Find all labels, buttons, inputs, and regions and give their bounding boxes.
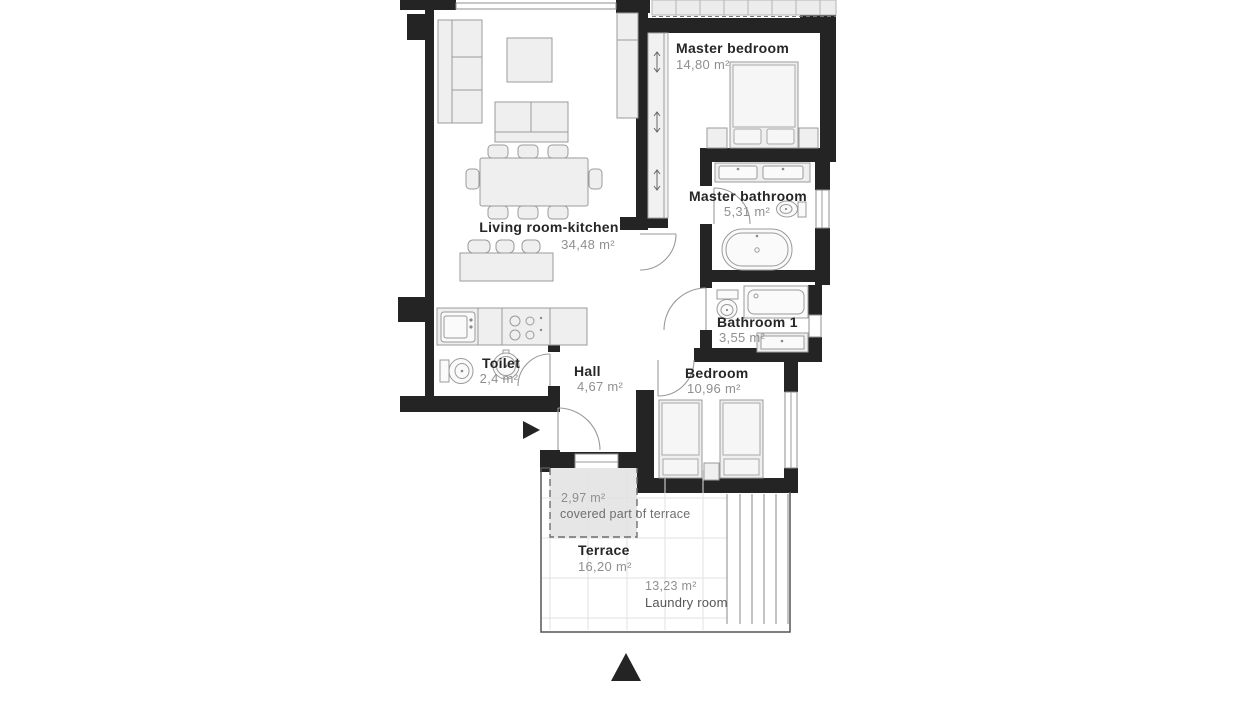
room-area-bedroom: 10,96 m² <box>687 382 741 396</box>
single-bed-icon <box>659 400 702 478</box>
room-label-terrace: Terrace <box>578 543 630 558</box>
laundry-room-area-label: 13,23 m² <box>645 580 697 593</box>
room-area-terrace: 16,20 m² <box>578 560 632 574</box>
covered-terrace-text: covered part of terrace <box>560 508 690 521</box>
toilet-door <box>518 354 550 386</box>
bathtub-icon <box>722 229 792 270</box>
tall-cabinet-icon <box>617 13 638 118</box>
room-label-bathroom-1: Bathroom 1 <box>717 315 798 330</box>
terrace-louvers <box>727 494 788 624</box>
floorplan-canvas: Living room-kitchen 34,48 m² Master bedr… <box>0 0 1240 720</box>
room-label-toilet: Toilet <box>482 356 520 371</box>
nightstand-icon <box>704 463 719 480</box>
bathroom-1-door <box>664 288 706 330</box>
single-bed-icon <box>720 400 763 478</box>
corner-sofa-icon <box>438 20 482 123</box>
room-label-master-bedroom: Master bedroom <box>676 41 789 56</box>
corridor-door <box>640 234 676 270</box>
double-vanity-icon <box>715 163 810 182</box>
room-label-bedroom: Bedroom <box>685 366 749 381</box>
room-area-living-room-kitchen: 34,48 m² <box>561 238 615 252</box>
nightstand-icon <box>707 128 727 148</box>
covered-terrace-area-label: 2,97 m² <box>561 492 605 505</box>
room-label-master-bathroom: Master bathroom <box>689 189 807 204</box>
coffee-table-icon <box>507 38 552 82</box>
laundry-room-text: Laundry room <box>645 596 728 610</box>
room-label-hall: Hall <box>574 364 601 379</box>
kitchen-sink-icon <box>441 312 475 342</box>
nightstand-icon <box>799 128 818 148</box>
floorplan-drawing <box>0 0 1240 720</box>
room-area-master-bathroom: 5,31 m² <box>724 205 770 219</box>
wardrobe-hatch <box>652 0 836 17</box>
toilet-icon <box>440 359 473 384</box>
room-label-living-room-kitchen: Living room-kitchen <box>479 220 619 235</box>
north-arrow-icon <box>611 653 641 681</box>
room-area-bathroom-1: 3,55 m² <box>719 331 765 345</box>
loveseat-icon <box>495 102 568 142</box>
dining-table-icon <box>466 145 602 219</box>
room-area-hall: 4,67 m² <box>577 380 623 394</box>
sliding-wardrobe <box>648 33 668 218</box>
kitchen-counter-icon <box>437 308 587 345</box>
room-area-master-bedroom: 14,80 m² <box>676 58 730 72</box>
double-bed-icon <box>730 62 798 148</box>
entrance-door <box>558 408 600 450</box>
kitchen-island-icon <box>460 240 553 281</box>
room-area-toilet: 2,4 m² <box>480 372 519 386</box>
entrance-arrow-icon <box>523 421 540 439</box>
